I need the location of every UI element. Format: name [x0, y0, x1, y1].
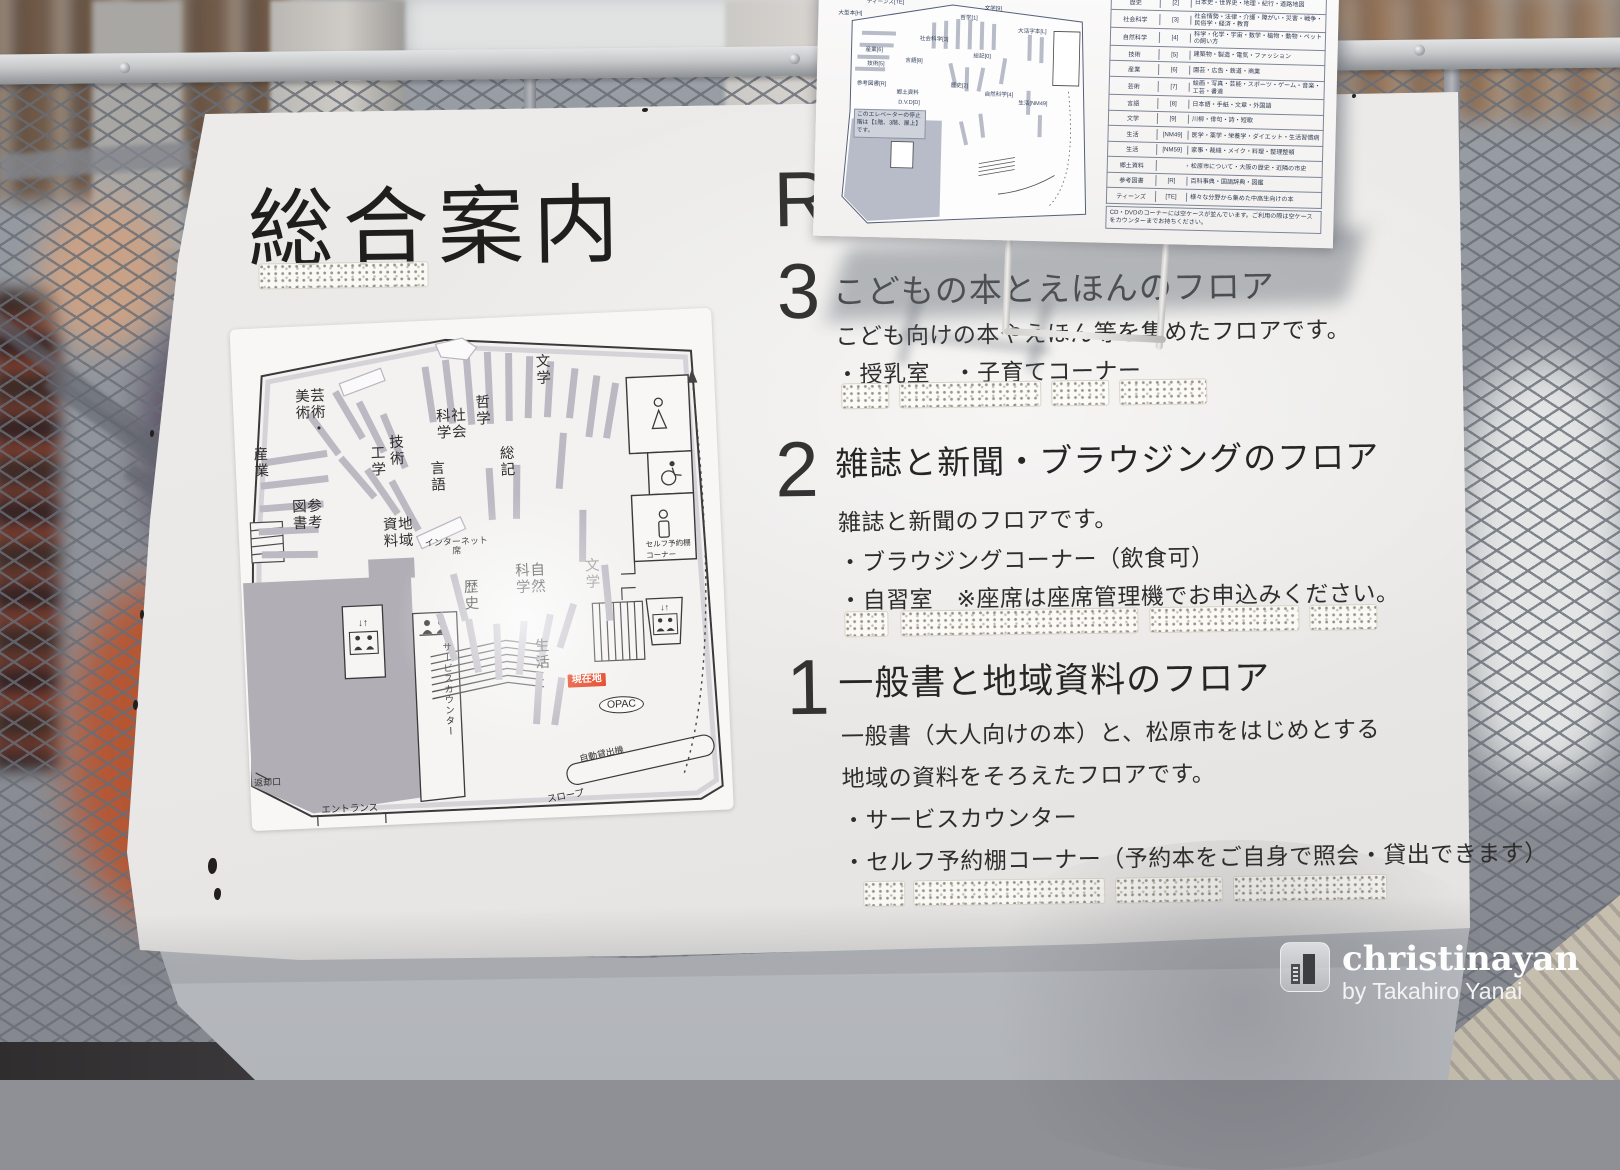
map-label-self-shelf: セルフ予約棚コーナー: [645, 537, 694, 562]
braille-strip: [258, 261, 428, 289]
floor-number-1: 1: [786, 648, 830, 727]
mini-label: 参考図書[R]: [857, 79, 887, 88]
building-icon: [1280, 942, 1330, 992]
map-label-social-science: 社会科学: [433, 407, 465, 448]
map-label-literature: 文学: [533, 353, 550, 387]
map-label-reference: 参考図書: [289, 498, 321, 539]
floor-map: ↓↑: [230, 308, 734, 831]
mini-label: 言語[8]: [905, 56, 923, 64]
mini-label: 歴史[2]: [951, 81, 969, 89]
braille-strip: [844, 611, 888, 638]
braille-strip: [1309, 604, 1377, 631]
floor2-bullet: ・ブラウジングコーナー（飲食可）: [838, 538, 1214, 577]
paper-handout: ティーンズ[TE] 大型本[H] 参考図書[R] 産業[6] 技術[5] 社会科…: [813, 0, 1339, 248]
braille-strip: [841, 383, 889, 410]
floor1-bullet: ・サービスカウンター: [842, 798, 1077, 835]
mini-label: 哲学[1]: [960, 13, 978, 21]
watermark-byline: by Takahiro Yanai: [1342, 978, 1579, 1005]
floor2-heading: 雑誌と新聞・ブラウジングのフロア: [835, 430, 1380, 486]
map-label-philosophy: 哲学: [473, 394, 490, 428]
svg-text:↓↑: ↓↑: [358, 618, 368, 629]
floor-number-3: 3: [776, 252, 820, 331]
elevator-icon: ↓↑: [342, 605, 385, 679]
braille-strip: [1149, 605, 1299, 633]
watermark-brand: christinayan: [1342, 942, 1579, 976]
mini-label: 産業[6]: [865, 45, 883, 53]
braille-strip: [900, 607, 1138, 636]
mini-label: 生活[NM49]: [1018, 99, 1047, 108]
mini-label: 大型本[H]: [838, 8, 862, 17]
map-label-general: 総記: [497, 445, 514, 479]
paper-genre-table: 歴史[2]日本史・世界史・地理・紀行・道路地図 社会科学[3]社会情勢・法律・介…: [1105, 0, 1327, 234]
table-note: CD・DVDのコーナーには空ケースが並んでいます。ご利用の際は空ケースをカウンタ…: [1105, 205, 1321, 233]
map-label-local-materials: 地域資料: [380, 516, 412, 557]
floor1-heading: 一般書と地域資料のフロア: [838, 649, 1271, 706]
photographer-shadow: [930, 840, 1550, 1170]
mini-label: 総記[0]: [973, 51, 991, 59]
svg-text:↓↑: ↓↑: [660, 602, 669, 612]
map-label-returns: 返却口: [254, 778, 281, 789]
braille-strip: [1051, 380, 1109, 407]
mini-map-elevator-note: このエレベーターの停止階は【1階、3階、屋上】です。: [853, 109, 926, 140]
mini-label: 郷土資料: [896, 88, 919, 97]
mini-label: 大活字本[L]: [1018, 27, 1047, 36]
map-label-industry: 産業: [251, 446, 268, 480]
paper-mini-map: ティーンズ[TE] 大型本[H] 参考図書[R] 産業[6] 技術[5] 社会科…: [827, 0, 1101, 235]
mini-label: 文学[9]: [985, 4, 1003, 12]
braille-strip: [899, 381, 1041, 409]
map-label-art: 芸術・美術: [292, 387, 325, 446]
mini-label: 社会科学[3]: [920, 34, 949, 43]
map-label-engineering: 工学: [368, 445, 385, 479]
floor1-description: 一般書（大人向けの本）と、松原市をはじめとする: [841, 710, 1380, 752]
mini-label: 技術[5]: [867, 59, 885, 67]
braille-strip: [863, 881, 905, 908]
mini-label: ティーンズ[TE]: [867, 0, 905, 6]
floor2-description: 雑誌と新聞のフロアです。: [838, 500, 1118, 538]
mini-label: 自然科学[4]: [984, 90, 1013, 99]
floor-number-2: 2: [775, 430, 819, 509]
watermark: christinayan by Takahiro Yanai: [1280, 942, 1579, 1005]
braille-strip: [1119, 378, 1207, 405]
mini-label: D.V.D[D]: [898, 100, 920, 107]
floor1-description: 地域の資料をそろえたフロアです。: [841, 754, 1215, 793]
map-label-technology: 技術: [386, 434, 403, 468]
map-label-language: 言語: [428, 460, 445, 494]
